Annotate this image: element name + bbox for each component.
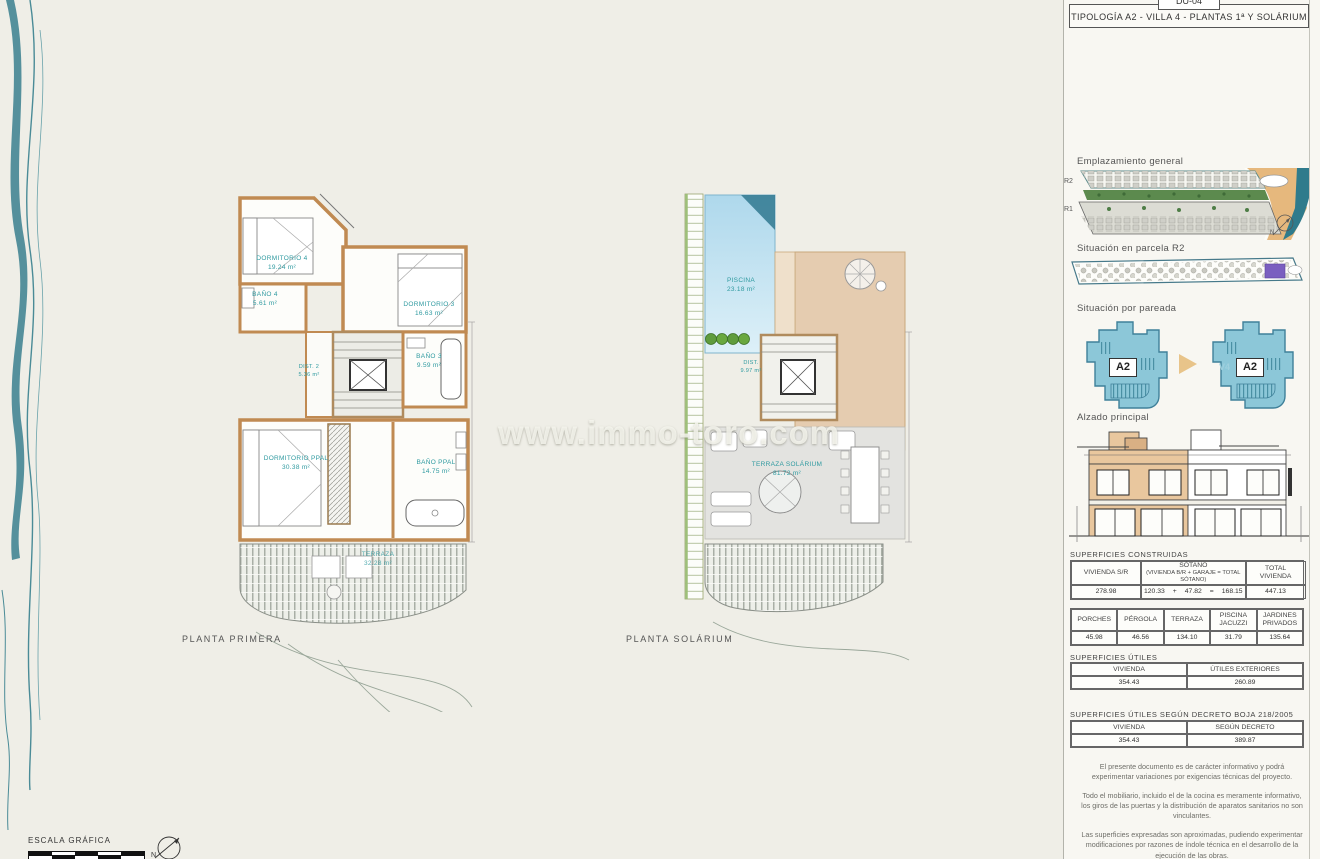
planta-primera-title: PLANTA PRIMERA	[182, 634, 282, 644]
th-segun-decreto: SEGÚN DECRETO	[1187, 721, 1303, 734]
th-porches: PORCHES	[1071, 609, 1117, 631]
th-utiles-vivienda: VIVIENDA	[1071, 663, 1187, 676]
room-label-dormitorio3: DORMITORIO 3 16.63 m²	[386, 300, 472, 318]
coastline-decoration	[0, 0, 55, 859]
room-label-dormitorio-ppal: DORMITORIO PPAL 30.38 m²	[248, 454, 344, 472]
td-terraza: 134.10	[1164, 631, 1210, 645]
disclaimer-paragraph-2: Todo el mobiliario, incluido el de la co…	[1078, 791, 1306, 821]
table-title-utiles: SUPERFICIES ÚTILES	[1070, 653, 1157, 662]
disclaimer-paragraph-1: El presente documento es de carácter inf…	[1078, 762, 1306, 782]
map-north-arrow-icon: N	[1268, 212, 1298, 238]
th-total-vivienda: TOTAL VIVIENDA	[1246, 561, 1306, 585]
room-label-dist: DIST. 9.97 m²	[731, 360, 771, 376]
td-utiles-vivienda: 354.43	[1071, 676, 1187, 689]
th-jardines: JARDINES PRIVADOS	[1257, 609, 1303, 631]
unit-label-v4-ghost: V4	[1219, 362, 1230, 372]
table-construidas-1: VIVIENDA S/R SÓTANO (VIVIENDA B/R + GARA…	[1070, 560, 1304, 600]
th-terraza: TERRAZA	[1164, 609, 1210, 631]
disclaimer-text: El presente documento es de carácter inf…	[1078, 762, 1306, 859]
room-label-terraza: TERRAZA 32.28 m²	[338, 550, 418, 568]
sheet-title: TIPOLOGÍA A2 - VILLA 4 - PLANTAS 1ª Y SO…	[1070, 12, 1308, 22]
td-pergola: 46.56	[1117, 631, 1163, 645]
td-segun-decreto: 389.87	[1187, 734, 1303, 747]
td-piscina-jacuzzi: 31.79	[1210, 631, 1256, 645]
section-title-emplazamiento: Emplazamiento general	[1077, 156, 1183, 167]
plan-sheet: DORMITORIO 4 19.24 m² BAÑO 4 5.61 m² DOR…	[0, 0, 1320, 859]
th-utiles-exteriores: ÚTILES EXTERIORES	[1187, 663, 1303, 676]
svg-text:N: N	[1270, 230, 1274, 236]
td-porches: 45.98	[1071, 631, 1117, 645]
room-label-terraza-solarium: TERRAZA SOLÁRIUM 81.72 m²	[735, 460, 839, 478]
td-jardines: 135.64	[1257, 631, 1303, 645]
table-decreto: VIVIENDA SEGÚN DECRETO 354.43 389.87	[1070, 720, 1304, 748]
td-utiles-exteriores: 260.89	[1187, 676, 1303, 689]
td-decreto-vivienda: 354.43	[1071, 734, 1187, 747]
section-title-alzado: Alzado principal	[1077, 412, 1149, 423]
sheet-code: DU-04	[1158, 0, 1220, 10]
table-title-construidas: SUPERFICIES CONSTRUIDAS	[1070, 550, 1188, 559]
section-title-parcela: Situación en parcela R2	[1077, 243, 1185, 254]
th-piscina-jacuzzi: PISCINA JACUZZI	[1210, 609, 1256, 631]
scale-label: ESCALA GRÁFICA	[28, 836, 111, 845]
th-pergola: PÉRGOLA	[1117, 609, 1163, 631]
sidebar-right-rule	[1309, 0, 1310, 859]
table-utiles: VIVIENDA ÚTILES EXTERIORES 354.43 260.89	[1070, 662, 1304, 690]
room-label-dormitorio4: DORMITORIO 4 19.24 m²	[236, 254, 328, 272]
disclaimer-paragraph-3: Las superficies expresadas son aproximad…	[1078, 830, 1306, 859]
td-sotano: 120.33 + 47.82 = 168.15	[1141, 585, 1246, 599]
alzado-elevation	[1069, 424, 1309, 544]
room-label-bano4: BAÑO 4 5.61 m²	[234, 290, 296, 308]
table-construidas-2: PORCHES PÉRGOLA TERRAZA PISCINA JACUZZI …	[1070, 608, 1304, 646]
pareada-diagram	[1069, 316, 1309, 412]
label-r2: R2	[1064, 178, 1073, 185]
room-label-bano-ppal: BAÑO PPAL 14.75 m²	[408, 458, 464, 476]
td-vivienda-sr: 278.98	[1071, 585, 1141, 599]
parcela-strip-map	[1069, 256, 1307, 286]
north-arrow-icon: N	[145, 830, 190, 859]
room-label-bano3: BAÑO 3 9.59 m²	[404, 352, 454, 370]
planta-solarium-title: PLANTA SOLÁRIUM	[626, 634, 733, 644]
room-label-dist2: DIST. 2 5.36 m²	[286, 364, 332, 380]
svg-text:N: N	[151, 852, 156, 859]
th-sotano: SÓTANO (VIVIENDA B/R + GARAJE = TOTAL SÓ…	[1141, 561, 1246, 585]
table-title-decreto: SUPERFICIES ÚTILES SEGÚN DECRETO BOJA 21…	[1070, 710, 1293, 719]
scale-bar-row2	[28, 855, 145, 859]
section-title-pareada: Situación por pareada	[1077, 303, 1176, 314]
unit-label-a2-right: A2	[1236, 358, 1264, 377]
label-r1: R1	[1064, 206, 1073, 213]
room-label-piscina: PISCINA 23.18 m²	[711, 276, 771, 294]
watermark: www.immo-toro.com	[498, 414, 918, 452]
td-total-vivienda: 447.13	[1246, 585, 1306, 599]
th-decreto-vivienda: VIVIENDA	[1071, 721, 1187, 734]
th-vivienda-sr: VIVIENDA S/R	[1071, 561, 1141, 585]
unit-label-a2-left: A2	[1109, 358, 1137, 377]
